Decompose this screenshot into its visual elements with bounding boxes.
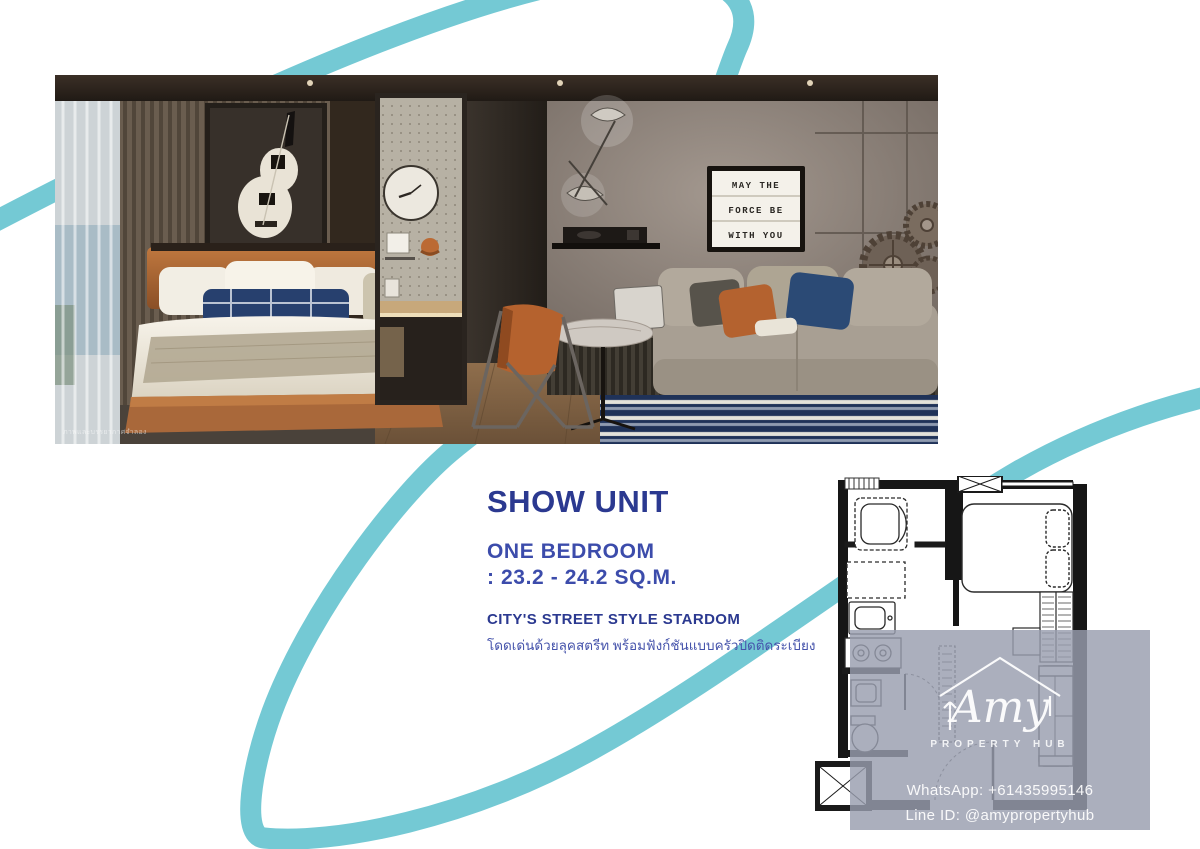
lightbox-sign: MAY THE FORCE BE WITH YOU (707, 166, 805, 252)
sign-line-2: FORCE BE (728, 206, 783, 216)
unit-details: SHOW UNIT ONE BEDROOM : 23.2 - 24.2 SQ.M… (487, 486, 817, 656)
unit-size-range: : 23.2 - 24.2 SQ.M. (487, 565, 817, 591)
brand-subtitle: PROPERTY HUB (930, 739, 1069, 750)
bathroom-mirror-view (375, 93, 467, 405)
wall-shelf (552, 243, 660, 249)
line-id-contact: Line ID: @amypropertyhub (850, 807, 1150, 824)
vanity-counter (380, 301, 462, 313)
agency-watermark: Amy PROPERTY HUB WhatsApp: +61435995146 … (850, 630, 1150, 830)
striped-rug (600, 391, 938, 444)
agency-logo: Amy PROPERTY HUB (920, 644, 1080, 767)
soap-bottle (385, 279, 399, 297)
plan-bed (962, 504, 1072, 592)
vent-window (845, 478, 879, 489)
page-title: SHOW UNIT (487, 486, 817, 517)
photo-disclaimer-caption: ภาพและบรรยากาศจำลอง (63, 427, 147, 438)
unit-type-label: ONE BEDROOM (487, 539, 817, 565)
fridge (847, 562, 905, 598)
brochure-page: MAY THE FORCE BE WITH YOU (0, 0, 1200, 849)
interior-render: MAY THE FORCE BE WITH YOU (55, 75, 938, 444)
sofa (653, 266, 938, 395)
washer (855, 498, 907, 550)
guitar-artwork (205, 103, 327, 255)
towel-dispenser (387, 233, 409, 253)
sign-line-3: WITH YOU (728, 231, 783, 241)
unit-tagline-thai: โดดเด่นด้วยลุคสตรีท พร้อมฟังก์ชันแบบครัว… (487, 634, 817, 656)
record-player-shelf (552, 227, 660, 249)
ceiling (55, 75, 938, 101)
unit-tagline: CITY'S STREET STYLE STARDOM (487, 611, 817, 628)
window-greenery (55, 305, 75, 385)
whatsapp-contact: WhatsApp: +61435995146 (850, 782, 1150, 799)
mirror-reflection (380, 327, 404, 377)
brand-script: Amy (947, 682, 1050, 733)
sign-line-1: MAY THE (732, 181, 780, 191)
show-unit-photo: MAY THE FORCE BE WITH YOU (55, 75, 938, 444)
